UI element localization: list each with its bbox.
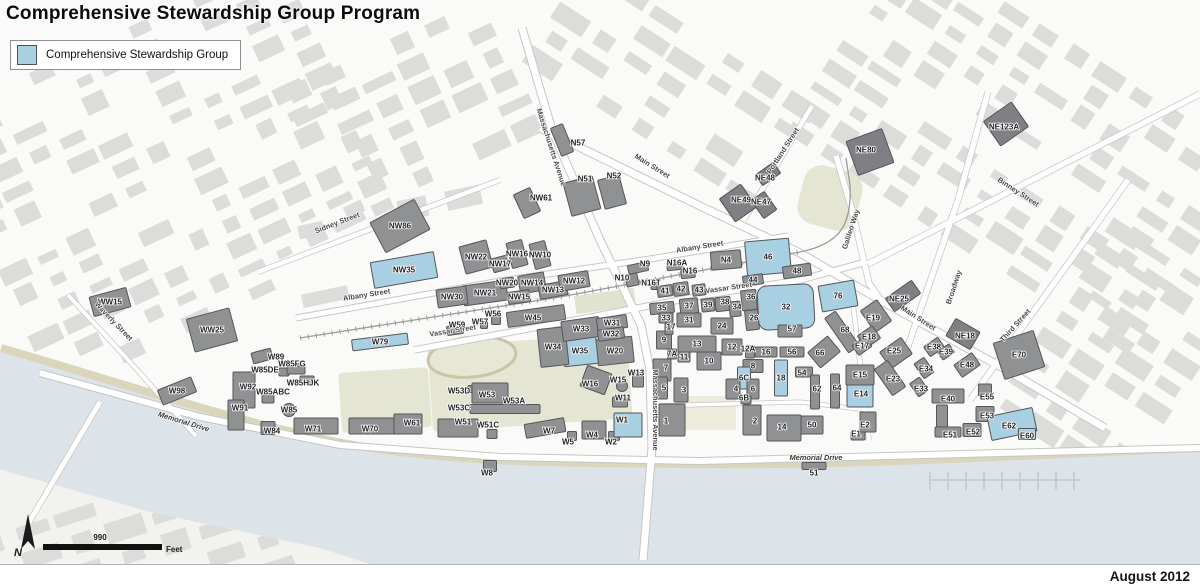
building-label-NW30: NW30: [441, 293, 464, 302]
building-label-N57: N57: [571, 139, 586, 148]
building-label-W79: W79: [372, 338, 389, 347]
building-label-66: 66: [816, 349, 825, 358]
building-label-W85: W85: [281, 406, 298, 415]
building-label-W16: W16: [582, 380, 599, 389]
building-label-56: 56: [788, 348, 797, 357]
building-label-E23: E23: [886, 375, 901, 384]
compass-n-label: N: [14, 547, 23, 559]
building-label-13: 13: [693, 340, 702, 349]
building-label-39: 39: [704, 301, 713, 310]
building-label-8: 8: [751, 362, 756, 371]
scale-bar: [43, 544, 162, 550]
building-label-NW15: NW15: [508, 293, 531, 302]
street-label-massachusetts-avenue: Massachusetts Avenue: [651, 369, 660, 450]
building-label-W61: W61: [404, 419, 421, 428]
building-label-12A: 12A: [741, 345, 756, 354]
building-label-W1: W1: [616, 416, 629, 425]
building-label-43: 43: [695, 286, 704, 295]
building-label-NW16: NW16: [506, 250, 529, 259]
footer: August 2012: [0, 564, 1200, 588]
building-label-14: 14: [778, 423, 787, 432]
campus-map: WW15WW25NW86NW35NW22NW17NW16NW10NW21NW20…: [0, 0, 1200, 569]
building-label-E2: E2: [860, 421, 870, 430]
page-title: Comprehensive Stewardship Group Program: [6, 3, 420, 25]
building-label-NE123A: NE123A: [989, 123, 1019, 132]
building-label-41: 41: [661, 287, 670, 296]
building-label-35: 35: [658, 304, 667, 313]
building-label-W15: W15: [610, 376, 627, 385]
building-label-76: 76: [834, 292, 843, 301]
building-label-W13: W13: [628, 369, 645, 378]
building-label-46: 46: [764, 253, 773, 262]
building-label-W70: W70: [362, 425, 379, 434]
building-label-2: 2: [753, 417, 758, 426]
building-label-64: 64: [833, 384, 842, 393]
building-label-E18: E18: [862, 333, 877, 342]
building-label-W11: W11: [615, 394, 632, 403]
legend-label: Comprehensive Stewardship Group: [46, 49, 228, 61]
building-label-17: 17: [667, 323, 676, 332]
building-label-NW17: NW17: [489, 260, 512, 269]
building-label-W5: W5: [562, 438, 575, 447]
building-label-E55: E55: [980, 393, 995, 402]
building-label-7: 7: [664, 364, 669, 373]
building-label-W8: W8: [481, 469, 494, 478]
scale-value: 990: [93, 533, 107, 542]
building-label-NE80: NE80: [856, 146, 877, 155]
building-label-W53A: W53A: [503, 397, 525, 406]
building-label-37: 37: [685, 302, 694, 311]
building-label-NW10: NW10: [529, 251, 552, 260]
building-label-E15: E15: [853, 371, 868, 380]
building-label-NW14: NW14: [521, 279, 544, 288]
legend: Comprehensive Stewardship Group: [10, 40, 241, 70]
building-label-W92: W92: [240, 383, 257, 392]
building-label-W85HJK: W85HJK: [287, 379, 320, 388]
building-label-NW86: NW86: [389, 222, 412, 231]
building-label-W85FG: W85FG: [278, 360, 306, 369]
building-label-6C: 6C: [739, 374, 749, 383]
building-label-W34: W34: [545, 343, 562, 352]
building-label-4: 4: [734, 385, 739, 394]
building-label-W2: W2: [605, 438, 618, 447]
building-label-NW22: NW22: [465, 253, 488, 262]
building-label-57: 57: [788, 325, 797, 334]
building-label-E51: E51: [943, 431, 958, 440]
building-label-W85ABC: W85ABC: [256, 388, 290, 397]
building-label-6B: 6B: [739, 394, 749, 403]
building-label-10: 10: [705, 357, 714, 366]
building-label-N9: N9: [640, 260, 651, 269]
building-label-E52: E52: [966, 428, 981, 437]
building-label-E34: E34: [919, 365, 934, 374]
building-label-W7: W7: [543, 427, 556, 436]
building-label-W20: W20: [607, 347, 624, 356]
building-label-NE49: NE49: [731, 196, 752, 205]
building-label-3: 3: [682, 386, 687, 395]
building-label-48: 48: [793, 267, 802, 276]
building-label-W31: W31: [604, 319, 621, 328]
building-label-W45: W45: [525, 314, 542, 323]
building-label-NW21: NW21: [474, 289, 497, 298]
building-label-NW61: NW61: [530, 194, 553, 203]
street-label-memorial-drive: Memorial Drive: [790, 453, 843, 462]
building-label-E40: E40: [941, 395, 956, 404]
building-label-W33: W33: [573, 325, 590, 334]
building-label-1: 1: [664, 417, 669, 426]
building-label-E17: E17: [855, 342, 870, 351]
building-label-11: 11: [680, 353, 689, 362]
map-date: August 2012: [1110, 569, 1190, 584]
building-label-E33: E33: [914, 385, 929, 394]
building-label-W51C: W51C: [477, 421, 499, 430]
building-label-12: 12: [728, 343, 737, 352]
building-label-NW35: NW35: [393, 266, 416, 275]
building-label-33: 33: [662, 314, 671, 323]
building-label-NE25: NE25: [889, 295, 910, 304]
building-label-NW13: NW13: [542, 286, 565, 295]
building-label-E70: E70: [1012, 351, 1027, 360]
building-label-E53: E53: [980, 412, 995, 421]
map-svg: WW15WW25NW86NW35NW22NW17NW16NW10NW21NW20…: [0, 0, 1200, 564]
building-label-32: 32: [782, 303, 791, 312]
building-label-51: 51: [810, 469, 819, 478]
building-label-26: 26: [750, 314, 759, 323]
legend-swatch-csg: [17, 45, 37, 65]
building-label-24: 24: [718, 322, 727, 331]
building-label-54: 54: [798, 369, 807, 378]
building-label-E39: E39: [939, 348, 954, 357]
building-label-W98: W98: [169, 387, 186, 396]
building-label-WW25: WW25: [200, 326, 225, 335]
building-label-W32: W32: [603, 330, 620, 339]
building-label-E14: E14: [854, 390, 869, 399]
building-label-W51: W51: [455, 418, 472, 427]
building-label-W4: W4: [586, 431, 599, 440]
building-label-7A: 7A: [667, 350, 677, 359]
building-label-W84: W84: [264, 427, 281, 436]
building-label-N51: N51: [578, 175, 593, 184]
building-label-9: 9: [662, 336, 667, 345]
building-W53C: [470, 405, 540, 414]
building-label-NW12: NW12: [563, 277, 586, 286]
building-label-N16: N16: [683, 267, 698, 276]
building-label-6: 6: [751, 385, 756, 394]
building-label-31: 31: [685, 316, 694, 325]
building-label-E48: E48: [960, 361, 975, 370]
building-label-50: 50: [808, 421, 817, 430]
building-label-E19: E19: [866, 314, 881, 323]
building-label-38: 38: [721, 298, 730, 307]
building-label-NE18: NE18: [955, 332, 976, 341]
building-label-N16T: N16T: [641, 279, 661, 288]
building-label-68: 68: [841, 326, 850, 335]
building-label-N52: N52: [607, 172, 622, 181]
building-label-42: 42: [677, 285, 686, 294]
building-label-18: 18: [777, 374, 786, 383]
building-label-N10: N10: [615, 274, 630, 283]
building-label-W53C: W53C: [448, 404, 470, 413]
building-label-34: 34: [733, 303, 742, 312]
building-label-16: 16: [762, 348, 771, 357]
building-label-N4: N4: [721, 256, 732, 265]
building-label-E25: E25: [887, 347, 902, 356]
building-label-62: 62: [813, 385, 822, 394]
building-label-E1: E1: [851, 430, 861, 439]
scale-unit: Feet: [166, 545, 183, 554]
building-label-36: 36: [747, 293, 756, 302]
building-label-W85DE: W85DE: [251, 366, 279, 375]
building-label-W53: W53: [479, 391, 496, 400]
building-label-W35: W35: [572, 347, 589, 356]
building-label-E60: E60: [1020, 432, 1035, 441]
building-label-W91: W91: [232, 404, 249, 413]
building-label-5: 5: [662, 384, 667, 393]
building-label-NE47: NE47: [751, 198, 772, 207]
building-W51C: [487, 430, 497, 439]
building-label-E62: E62: [1002, 422, 1017, 431]
building-label-W71: W71: [305, 425, 322, 434]
building-label-W53D: W53D: [448, 387, 470, 396]
building-label-NW20: NW20: [496, 279, 519, 288]
